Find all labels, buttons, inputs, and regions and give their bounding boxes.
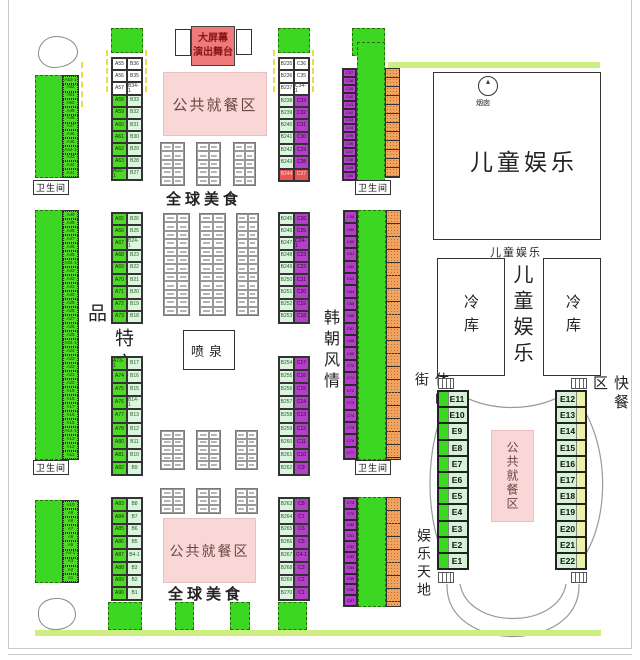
booth-A24: A24 — [63, 347, 78, 355]
booth-column-a-mid: A40A39A38A37A36A35A34-1A33A32A31A30A29A2… — [62, 210, 79, 460]
stall-cell — [237, 214, 248, 222]
booth-A40: A40 — [63, 211, 78, 219]
booth-A16: A16 — [63, 411, 78, 419]
stall-cell — [237, 290, 248, 298]
booth-row: A69B22 — [112, 262, 142, 274]
booth-A68: A68 — [112, 250, 127, 262]
booth-E2: E2 — [438, 537, 468, 553]
stall-cell — [197, 461, 209, 469]
green-block-bottom-3 — [230, 602, 250, 630]
booth-A72: A72 — [112, 299, 127, 311]
booth-row: B253C18 — [279, 311, 309, 323]
booth-column-e-left: E11E10E9E8E7E6E5E4E3E2E1 — [437, 390, 469, 570]
booth-C21: C21 — [294, 274, 309, 286]
booth-row: A88B3 — [112, 562, 142, 575]
booth-C70: C70 — [344, 360, 357, 372]
stall-cell — [164, 231, 177, 239]
booth-row: B259C12 — [279, 423, 309, 436]
restroom-box-3: 卫生间 — [33, 460, 69, 475]
booth-A87: A87 — [112, 549, 127, 562]
stall-cell — [237, 307, 248, 315]
stall-cell — [164, 290, 177, 298]
stall-cell — [237, 273, 248, 281]
stall-cell — [247, 505, 258, 513]
booth-C26: C26 — [294, 213, 309, 225]
stall-cell — [200, 231, 213, 239]
stall-cell — [213, 231, 226, 239]
booth-C8: C8 — [294, 498, 309, 511]
stall-cell — [161, 177, 173, 185]
stall-cell — [161, 431, 173, 439]
stall-cell — [234, 160, 245, 168]
restroom-box-1: 卫生间 — [33, 180, 69, 195]
booth-B260: B260 — [279, 436, 294, 449]
stall-cell — [173, 177, 185, 185]
booth-B247: B247 — [279, 237, 294, 249]
booth-E19: E19 — [556, 504, 586, 520]
booth-A80: A80 — [112, 436, 127, 449]
booth-A85: A85 — [112, 524, 127, 537]
booth-B30: B30 — [127, 131, 142, 143]
cold-storage-left-label: 冷库 — [460, 282, 481, 352]
stall-cell — [245, 177, 256, 185]
landscape-blob-bottom — [38, 598, 76, 630]
stall-cell — [248, 281, 259, 289]
stall-cell — [200, 248, 213, 256]
booth-E12: E12 — [556, 391, 586, 407]
stall-grid-bottom-1 — [160, 430, 185, 470]
booth-C24-1: C24-1 — [294, 237, 309, 249]
stall-grid-top-2 — [196, 142, 221, 186]
booth-C20: C20 — [294, 286, 309, 298]
booth-C69: C69 — [344, 347, 357, 359]
booth-C17: C17 — [294, 357, 309, 370]
booth-B268: B268 — [279, 562, 294, 575]
booth-B241: B241 — [279, 132, 294, 144]
stall-cell — [248, 273, 259, 281]
green-block-bottom-2 — [175, 602, 194, 630]
stall-cell — [177, 256, 190, 264]
stall-cell — [197, 446, 209, 454]
booth-row: B245C26 — [279, 213, 309, 225]
booth-row: A87B4-1 — [112, 549, 142, 562]
stall-cell — [209, 489, 221, 497]
booth-E5: E5 — [438, 488, 468, 504]
booth-C59: C59 — [344, 223, 357, 235]
booth-row: A85B6 — [112, 524, 142, 537]
booth-row: B239C32 — [279, 107, 309, 119]
booth-pairs-ab-top: A55B36A56B35A57B34-1A58B33A59B32A60B31A6… — [111, 57, 143, 181]
stall-grid-bottom-2 — [196, 430, 221, 470]
stall-cell — [161, 439, 173, 447]
booth-A65-1: A65-1 — [112, 168, 127, 180]
dash-accent-5 — [312, 50, 314, 92]
booth-C77: C77 — [344, 447, 357, 459]
booth-E10: E10 — [438, 407, 468, 423]
booth-C34-1: C34-1 — [294, 83, 309, 95]
stall-cell — [161, 143, 173, 151]
booth-row: A67B24-1 — [112, 237, 142, 249]
stall-grid-top-3 — [233, 142, 256, 186]
booth-C66: C66 — [344, 310, 357, 322]
stall-cell — [200, 281, 213, 289]
stall-cell — [161, 160, 173, 168]
fast-food-label: 快餐区 — [589, 375, 631, 427]
stall-cell — [209, 168, 221, 176]
booth-C9: C9 — [294, 462, 309, 475]
booth-B6: B6 — [127, 524, 142, 537]
booth-column-c-top: C37C38C39C40C41C42C43C44C45C46C47C48C49C… — [342, 68, 357, 181]
booth-row: A72B19 — [112, 299, 142, 311]
booth-E17: E17 — [556, 472, 586, 488]
stall-cell — [177, 281, 190, 289]
stall-grid-top-1 — [160, 142, 185, 186]
booth-row: B254C17 — [279, 357, 309, 370]
booth-row: A68B23 — [112, 250, 142, 262]
stall-cell — [197, 177, 209, 185]
stall-cell — [177, 214, 190, 222]
gate-bottom-right — [571, 572, 587, 583]
booth-row: B250C21 — [279, 274, 309, 286]
green-cap-ab-top — [111, 28, 143, 53]
booth-column-c-mid: C58C59C60C61C62C63C64C65C66C67C68C69C70C… — [343, 210, 358, 460]
booth-C30: C30 — [294, 132, 309, 144]
booth-B34-1: B34-1 — [127, 82, 142, 94]
stall-cell — [237, 298, 248, 306]
booth-A44-1: A44-1 — [63, 146, 78, 154]
stall-cell — [200, 264, 213, 272]
booth-B249: B249 — [279, 262, 294, 274]
booth-C31: C31 — [294, 119, 309, 131]
booth-A66: A66 — [112, 225, 127, 237]
stall-grid-bottom-3 — [235, 430, 258, 470]
booth-B3: B3 — [127, 562, 142, 575]
booth-row: A83B8 — [112, 498, 142, 511]
stall-cell — [173, 497, 185, 505]
booth-A65: A65 — [112, 213, 127, 225]
gate-top-left — [438, 378, 454, 389]
booth-A83: A83 — [112, 498, 127, 511]
booth-C65: C65 — [344, 298, 357, 310]
booth-C45: C45 — [343, 132, 356, 140]
booth-A13: A13 — [63, 435, 78, 443]
booth-C85: C85 — [344, 574, 357, 585]
stall-cell — [236, 454, 247, 462]
booth-A49: A49 — [63, 107, 78, 115]
stall-cell — [161, 454, 173, 462]
booth-B11: B11 — [127, 436, 142, 449]
booth-B16: B16 — [127, 370, 142, 383]
stall-cell — [209, 151, 221, 159]
booth-A21: A21 — [63, 371, 78, 379]
chimney-label: 烟囱 — [476, 98, 490, 108]
booth-B262: B262 — [279, 462, 294, 475]
booth-E18: E18 — [556, 488, 586, 504]
booth-A86: A86 — [112, 536, 127, 549]
booth-A89: A89 — [112, 575, 127, 588]
booth-row: A59B32 — [112, 107, 142, 119]
booth-A48: A48 — [63, 115, 78, 123]
booth-C10: C10 — [294, 449, 309, 462]
booth-A35: A35 — [63, 251, 78, 259]
booth-B255: B255 — [279, 370, 294, 383]
booth-C33: C33 — [294, 95, 309, 107]
booth-A7: A7 — [63, 525, 78, 533]
booth-C18: C18 — [294, 311, 309, 323]
booth-B33: B33 — [127, 95, 142, 107]
stall-cell — [209, 160, 221, 168]
stall-cell — [209, 143, 221, 151]
stall-cell — [236, 446, 247, 454]
booth-A74: A74 — [112, 370, 127, 383]
booth-B245: B245 — [279, 213, 294, 225]
stall-cell — [209, 177, 221, 185]
booth-C3: C3 — [294, 562, 309, 575]
booth-A62: A62 — [112, 143, 127, 155]
booth-C44: C44 — [343, 124, 356, 132]
booth-B29: B29 — [127, 143, 142, 155]
booth-C68: C68 — [344, 335, 357, 347]
booth-row: A73-1B17 — [112, 357, 142, 370]
stall-cell — [177, 307, 190, 315]
booth-C79: C79 — [344, 509, 357, 520]
booth-row: A75B15 — [112, 383, 142, 396]
stall-grid-bottom-4 — [160, 488, 185, 514]
booth-C50: C50 — [343, 172, 356, 180]
booth-B239: B239 — [279, 107, 294, 119]
booth-C71: C71 — [344, 372, 357, 384]
booth-A81: A81 — [112, 449, 127, 462]
booth-A28: A28 — [63, 307, 78, 315]
booth-row: B244C27 — [279, 169, 309, 181]
stall-cell — [200, 256, 213, 264]
booth-E22: E22 — [556, 553, 586, 569]
booth-row: B261C10 — [279, 449, 309, 462]
booth-row: B258C13 — [279, 409, 309, 422]
booth-B18: B18 — [127, 311, 142, 323]
cold-storage-right-label: 冷库 — [562, 282, 583, 352]
kids-zone-label: 儿童娱乐 — [470, 143, 578, 177]
green-bar-top — [388, 62, 600, 68]
stall-cell — [197, 489, 209, 497]
booth-C75: C75 — [344, 422, 357, 434]
stall-cell — [248, 256, 259, 264]
booth-pairs-ab-mid-lower: A73-1B17A74B16A75B15A76B14-1A77B13A78B12… — [111, 356, 143, 476]
booth-pairs-bc-mid-upper: B245C26B246C25B247C24-1B248C23B249C22B25… — [278, 212, 310, 324]
stall-cell — [248, 222, 259, 230]
booth-C80: C80 — [344, 520, 357, 531]
stage-label-line2: 演出舞台 — [193, 46, 233, 60]
stall-cell — [161, 505, 173, 513]
booth-A58: A58 — [112, 95, 127, 107]
stall-cell — [245, 160, 256, 168]
booth-row: B255C16 — [279, 370, 309, 383]
booth-A32: A32 — [63, 275, 78, 283]
stall-cell — [234, 177, 245, 185]
booth-B270: B270 — [279, 587, 294, 600]
stall-cell — [161, 151, 173, 159]
booth-row: B249C22 — [279, 262, 309, 274]
stall-cell — [173, 151, 185, 159]
booth-C81: C81 — [344, 530, 357, 541]
booth-row: B247C24-1 — [279, 237, 309, 249]
booth-C83: C83 — [344, 552, 357, 563]
green-l-stem — [357, 42, 385, 182]
booth-C22: C22 — [294, 262, 309, 274]
stall-cell — [200, 214, 213, 222]
stage-wing-right — [236, 29, 252, 55]
booth-A37: A37 — [63, 235, 78, 243]
booth-pairs-ab-bottom: A83B8A84B7A85B6A86B5A87B4-1A88B3A89B2A90… — [111, 497, 143, 601]
stall-cell — [236, 461, 247, 469]
stall-cell — [213, 307, 226, 315]
booth-column-a-top: A53-1A52A51A50A49A48A47A46A45A44-1A43A42… — [62, 75, 79, 178]
stall-cell — [247, 461, 258, 469]
booth-B238: B238 — [279, 95, 294, 107]
stall-cell — [197, 168, 209, 176]
booth-C64: C64 — [344, 285, 357, 297]
booth-A22: A22 — [63, 363, 78, 371]
booth-B27: B27 — [127, 168, 142, 180]
booth-A10: A10 — [63, 501, 78, 509]
booth-C60: C60 — [344, 236, 357, 248]
stall-cell — [177, 298, 190, 306]
booth-row: B257C14 — [279, 396, 309, 409]
booth-C67: C67 — [344, 323, 357, 335]
booth-E16: E16 — [556, 456, 586, 472]
booth-B259: B259 — [279, 423, 294, 436]
booth-row: A76B14-1 — [112, 396, 142, 409]
booth-row: B246C25 — [279, 225, 309, 237]
stall-cell — [245, 168, 256, 176]
stall-cell — [247, 439, 258, 447]
booth-E3: E3 — [438, 521, 468, 537]
booth-B5: B5 — [127, 536, 142, 549]
stall-cell — [197, 454, 209, 462]
stall-cell — [245, 151, 256, 159]
dash-accent-4 — [273, 50, 275, 92]
booth-A23: A23 — [63, 355, 78, 363]
booth-A78: A78 — [112, 423, 127, 436]
booth-C38: C38 — [343, 77, 356, 85]
booth-A88: A88 — [112, 562, 127, 575]
booth-row: B240C31 — [279, 119, 309, 131]
gate-bottom-left — [438, 572, 454, 583]
booth-B251: B251 — [279, 286, 294, 298]
stall-cell — [164, 273, 177, 281]
stall-cell — [237, 256, 248, 264]
venue-floor-plan: A53-1A52A51A50A49A48A47A46A45A44-1A43A42… — [0, 0, 640, 660]
booth-row: A66B25 — [112, 225, 142, 237]
booth-A51: A51 — [63, 92, 78, 100]
stall-cell — [213, 281, 226, 289]
dash-accent-1 — [81, 62, 83, 107]
stall-cell — [164, 264, 177, 272]
stall-cell — [237, 231, 248, 239]
booth-A59: A59 — [112, 107, 127, 119]
booth-E7: E7 — [438, 456, 468, 472]
booth-A73-1: A73-1 — [112, 357, 127, 370]
stall-cell — [209, 431, 221, 439]
stall-cell — [173, 454, 185, 462]
booth-C73: C73 — [344, 397, 357, 409]
stall-cell — [197, 505, 209, 513]
stall-cell — [248, 214, 259, 222]
stall-cell — [164, 248, 177, 256]
booth-B15: B15 — [127, 383, 142, 396]
stall-cell — [247, 489, 258, 497]
booth-row: A82B9 — [112, 462, 142, 475]
korea-style-label: 韩朝风情 — [317, 303, 341, 398]
booth-row: A84B7 — [112, 511, 142, 524]
stall-cell — [234, 168, 245, 176]
booth-column-a-bottom: A10A9A8A7A6A5A4-1A3A2A1 — [62, 500, 79, 583]
booth-A12: A12 — [63, 443, 78, 451]
stall-cell — [164, 214, 177, 222]
booth-row: A55B36 — [112, 58, 142, 70]
stall-cell — [248, 290, 259, 298]
stall-grid-bottom-5 — [196, 488, 221, 514]
booth-row: B235C36 — [279, 58, 309, 70]
booth-A29: A29 — [63, 299, 78, 307]
booth-pairs-bc-top: B235C36B236C35B237C34-1B238C33B239C32B24… — [278, 57, 310, 182]
stall-cell — [247, 497, 258, 505]
stall-cell — [213, 248, 226, 256]
booth-B243: B243 — [279, 156, 294, 168]
booth-row: A62B29 — [112, 143, 142, 155]
booth-A9: A9 — [63, 509, 78, 517]
booth-row: B267C4-1 — [279, 549, 309, 562]
booth-E14: E14 — [556, 423, 586, 439]
booth-B236: B236 — [279, 70, 294, 82]
booth-C19: C19 — [294, 299, 309, 311]
booth-C13: C13 — [294, 409, 309, 422]
booth-B264: B264 — [279, 511, 294, 524]
stall-cell — [161, 446, 173, 454]
booth-A2: A2 — [63, 566, 78, 574]
booth-C7: C7 — [294, 511, 309, 524]
booth-C74: C74 — [344, 410, 357, 422]
booth-row: A73B18 — [112, 311, 142, 323]
booth-C2: C2 — [294, 575, 309, 588]
booth-A14-1: A14-1 — [63, 427, 78, 435]
stall-cell — [236, 431, 247, 439]
stall-cell — [197, 151, 209, 159]
booth-C63: C63 — [344, 273, 357, 285]
booth-E13: E13 — [556, 407, 586, 423]
public-dining-bottom: 公共就餐区 — [163, 518, 256, 583]
stall-cell — [173, 431, 185, 439]
kids-zone-vertical-label: 儿童娱乐 — [507, 256, 536, 376]
booth-B25: B25 — [127, 225, 142, 237]
fountain-box: 喷泉 — [183, 330, 235, 370]
booth-A24-1: A24-1 — [63, 339, 78, 347]
stall-cell — [161, 461, 173, 469]
booth-C29: C29 — [294, 144, 309, 156]
booth-A82: A82 — [112, 462, 127, 475]
stall-cell — [161, 489, 173, 497]
booth-C4-1: C4-1 — [294, 549, 309, 562]
stall-cell — [173, 143, 185, 151]
booth-B265: B265 — [279, 524, 294, 537]
booth-B8: B8 — [127, 498, 142, 511]
booth-A46: A46 — [63, 130, 78, 138]
booth-C28: C28 — [294, 156, 309, 168]
stall-cell — [173, 160, 185, 168]
booth-B12: B12 — [127, 423, 142, 436]
booth-A27: A27 — [63, 315, 78, 323]
booth-row: A71B20 — [112, 286, 142, 298]
